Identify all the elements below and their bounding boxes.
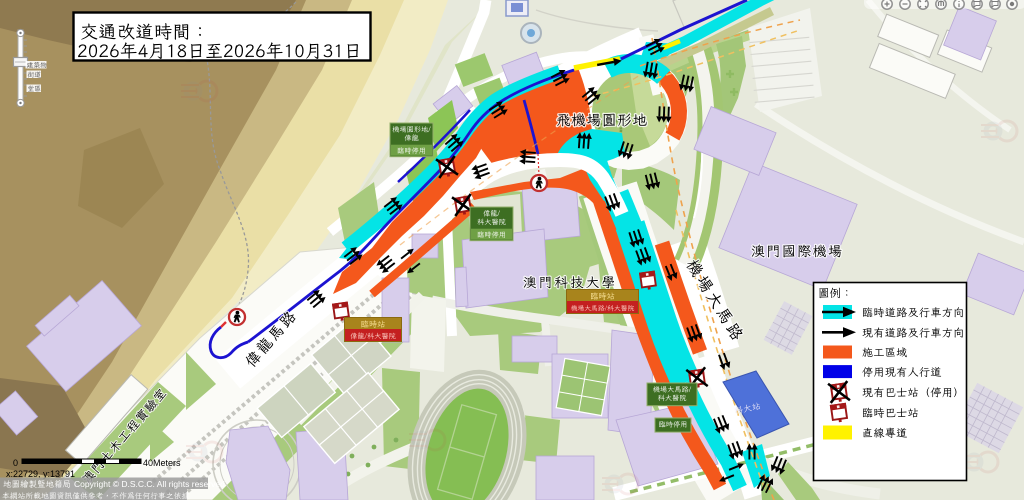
svg-text:Copyright © D.S.C.C. All right: Copyright © D.S.C.C. All rights reserved bbox=[74, 479, 225, 489]
svg-text:40Meters: 40Meters bbox=[143, 458, 181, 468]
svg-text:0: 0 bbox=[13, 458, 18, 468]
